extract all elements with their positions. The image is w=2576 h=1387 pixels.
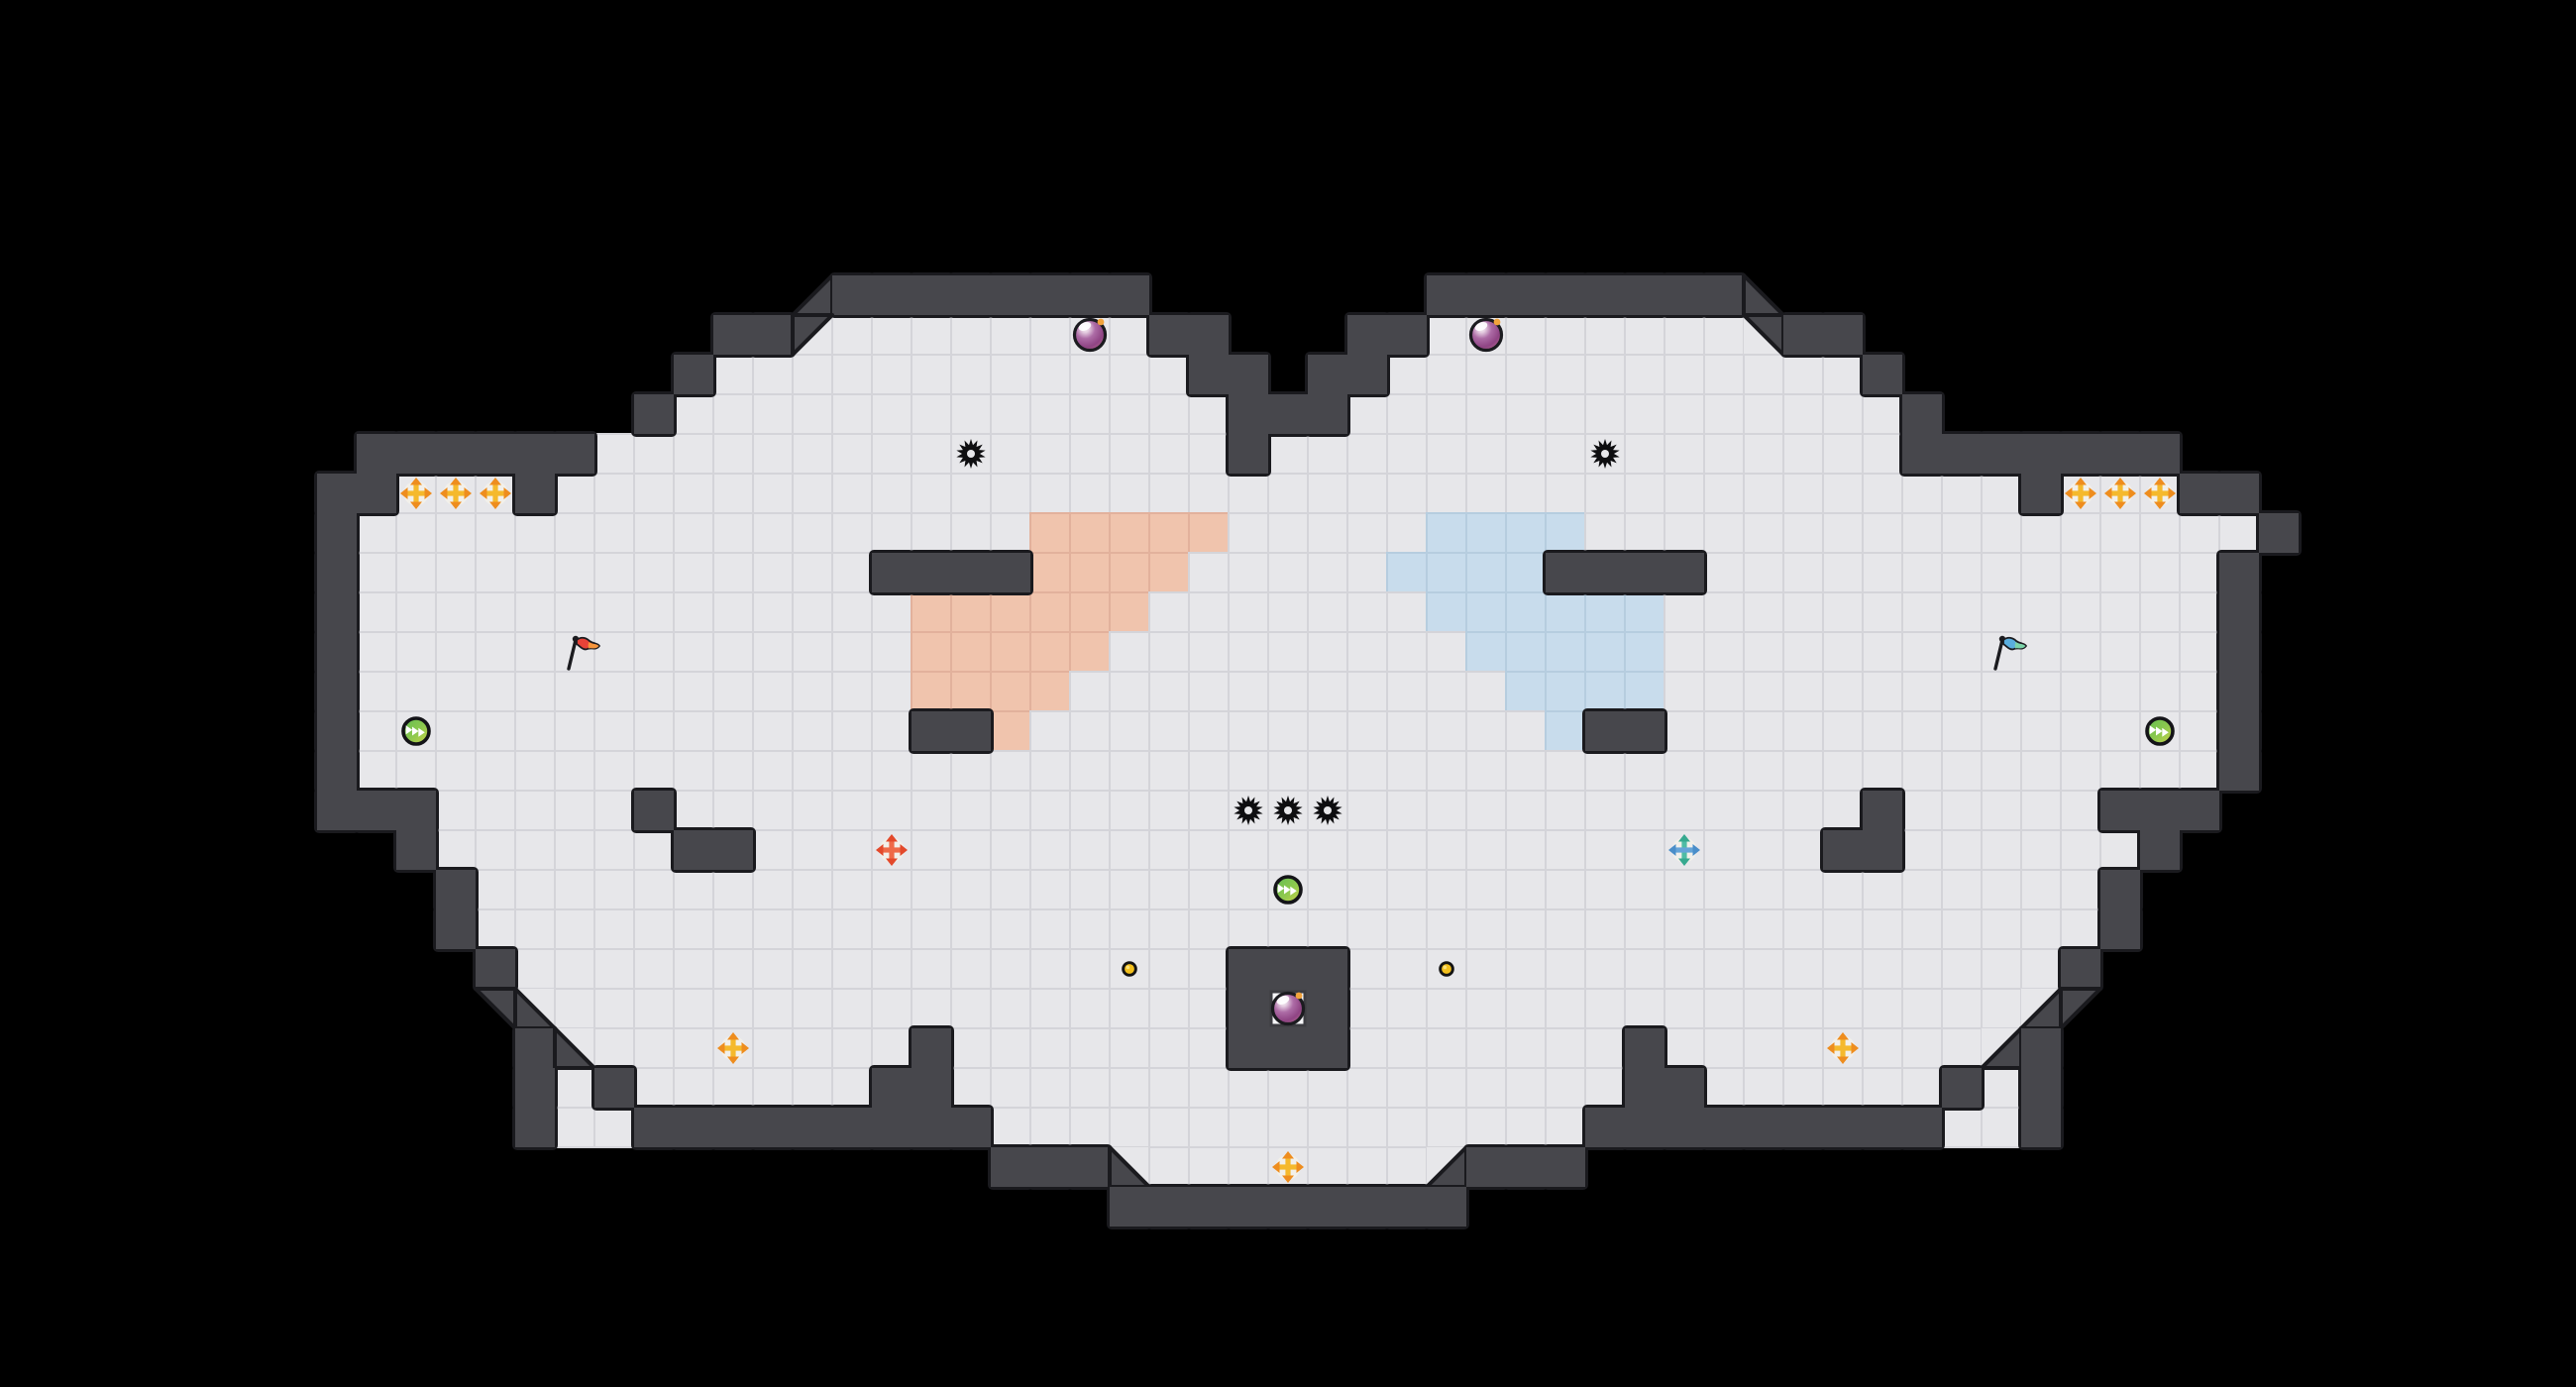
game-map-canvas[interactable]: [0, 0, 2576, 1387]
bomb-icon[interactable]: [1075, 319, 1106, 351]
button-icon[interactable]: [1122, 961, 1137, 977]
game-viewport: [0, 0, 2576, 1387]
bomb-icon[interactable]: [1471, 319, 1502, 351]
powerup-icon[interactable]: [1275, 877, 1301, 903]
bomb-icon[interactable]: [1273, 993, 1304, 1024]
button-icon[interactable]: [1439, 961, 1454, 977]
powerup-icon[interactable]: [403, 718, 429, 744]
powerup-icon[interactable]: [2147, 718, 2173, 744]
